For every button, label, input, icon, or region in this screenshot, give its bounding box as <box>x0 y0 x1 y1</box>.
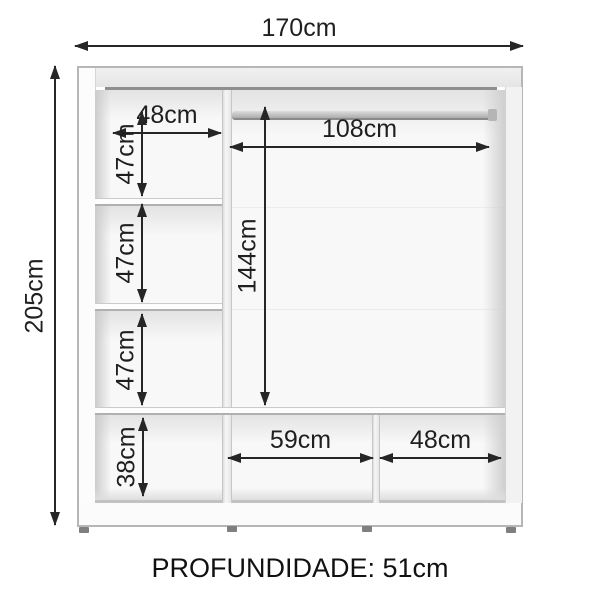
foot-mid-left <box>227 526 237 532</box>
arrowhead-right <box>510 41 524 51</box>
arrowhead-left <box>229 142 243 152</box>
foot-mid-right <box>362 526 372 532</box>
arrowhead-down <box>260 392 270 406</box>
dim-label: 47cm <box>114 329 139 390</box>
arrowhead-down <box>137 289 147 303</box>
arrowhead-left <box>74 41 88 51</box>
dim-line <box>54 66 56 525</box>
dim-line <box>141 204 143 302</box>
arrowhead-up <box>137 313 147 327</box>
arrowhead-right <box>208 128 222 138</box>
arrowhead-left <box>379 453 393 463</box>
dim-label: 48cm <box>410 428 471 453</box>
arrowhead-right <box>360 453 374 463</box>
left-shelf-2 <box>95 303 222 311</box>
back-seam-2 <box>232 309 505 310</box>
dim-line <box>230 146 489 148</box>
dim-label: 170cm <box>261 16 336 41</box>
arrowhead-right <box>488 453 502 463</box>
bottom-shelf <box>95 407 505 415</box>
top-panel-shadow <box>105 87 497 90</box>
interior-floor-shade <box>95 488 505 500</box>
base-plinth <box>79 503 521 525</box>
arrowhead-up <box>50 65 60 79</box>
left-side-panel <box>79 68 96 503</box>
dim-label: 47cm <box>114 222 139 283</box>
wardrobe-dimension-diagram: 170cm 205cm 48cm 47cm 47cm 47cm <box>0 0 600 600</box>
right-side-panel <box>505 87 522 503</box>
dim-line <box>264 107 266 405</box>
dim-line <box>380 457 501 459</box>
dim-label: 59cm <box>270 428 331 453</box>
dim-label: 38cm <box>115 426 140 487</box>
dim-label: 144cm <box>236 218 261 293</box>
arrowhead-left <box>227 453 241 463</box>
dim-line <box>75 45 523 47</box>
dim-line <box>228 457 373 459</box>
dim-label: 108cm <box>322 117 397 142</box>
dim-label: 47cm <box>114 123 139 184</box>
arrowhead-up <box>260 106 270 120</box>
rod-bracket-icon <box>488 109 497 121</box>
arrowhead-right <box>476 142 490 152</box>
depth-label: PROFUNDIDADE: 51cm <box>0 551 600 585</box>
interior-left-wall <box>95 90 111 503</box>
arrowhead-up <box>137 203 147 217</box>
arrowhead-down <box>137 392 147 406</box>
foot-left <box>79 527 89 533</box>
arrowhead-down <box>137 183 147 197</box>
left-shelf-1 <box>95 198 222 206</box>
back-seam-1 <box>232 207 505 208</box>
top-panel <box>79 68 521 87</box>
arrowhead-down <box>50 512 60 526</box>
dim-label: 205cm <box>23 258 48 333</box>
foot-right <box>506 527 516 533</box>
